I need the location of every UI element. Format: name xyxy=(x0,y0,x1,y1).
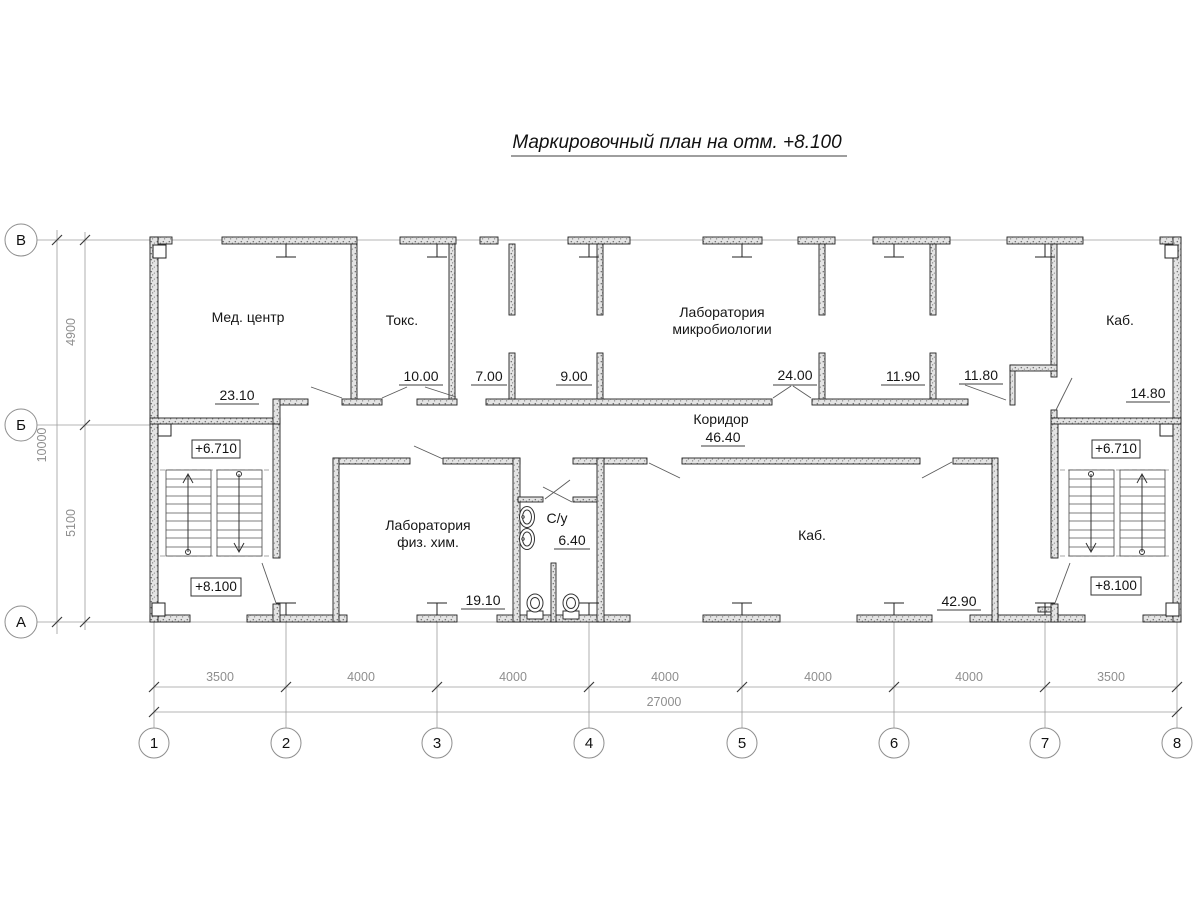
room-name-microbiology-2: микробиологии xyxy=(672,321,771,337)
elevation-left-lower: +8.100 xyxy=(195,579,237,594)
room-area-fizhim: 19.10 xyxy=(465,592,500,608)
elevation-right-upper: +6.710 xyxy=(1095,441,1137,456)
dim-total-10000: 10000 xyxy=(35,428,49,463)
column-marks xyxy=(152,244,1179,616)
room-name-sanuzel: С/у xyxy=(547,510,568,526)
room-area-1180: 11.80 xyxy=(964,367,998,383)
room-name-microbiology-1: Лаборатория xyxy=(679,304,764,320)
axis-label-row-a: А xyxy=(16,614,26,631)
axis-label-col-2: 2 xyxy=(282,735,290,752)
toilet-icon xyxy=(563,594,579,619)
corridor-north-wall xyxy=(275,365,1057,405)
corner-column-top-left xyxy=(153,245,166,258)
room-area-corridor: 46.40 xyxy=(705,429,740,445)
dim-4000-1: 4000 xyxy=(347,670,375,684)
dim-4000-4: 4000 xyxy=(804,670,832,684)
room-area-toks: 10.00 xyxy=(403,368,438,384)
door-stair-right xyxy=(1055,563,1070,603)
column-right-row-b xyxy=(1160,424,1173,436)
door-sanuzel xyxy=(543,480,572,502)
corridor-south-wall xyxy=(333,458,997,464)
dim-4000-5: 4000 xyxy=(955,670,983,684)
dim-4000-3: 4000 xyxy=(651,670,679,684)
sink-icon xyxy=(520,529,535,550)
dim-4900: 4900 xyxy=(64,318,78,346)
elevation-left-upper: +6.710 xyxy=(195,441,237,456)
room-name-kab-top: Каб. xyxy=(1106,312,1134,328)
door-toks xyxy=(382,387,407,398)
walls xyxy=(150,237,1181,622)
dim-4000-2: 4000 xyxy=(499,670,527,684)
dim-3500-2: 3500 xyxy=(1097,670,1125,684)
door-kab-big-1 xyxy=(649,463,680,478)
axis-label-col-7: 7 xyxy=(1041,735,1049,752)
room-area-microbiology: 24.00 xyxy=(777,367,812,383)
door-microbiology xyxy=(773,386,811,398)
title-block: Маркировочный план на отм. +8.100 xyxy=(511,132,847,156)
room-name-kab-big: Каб. xyxy=(798,527,826,543)
drawing-sheet: Маркировочный план на отм. +8.100 xyxy=(0,0,1200,900)
door-med-center xyxy=(311,387,342,398)
exterior-wall-right xyxy=(1173,237,1181,622)
room-name-fizhim-2: физ. хим. xyxy=(397,534,459,550)
room-area-sanuzel: 6.40 xyxy=(558,532,585,548)
axis-label-col-5: 5 xyxy=(738,735,746,752)
axis-label-col-3: 3 xyxy=(433,735,441,752)
door-kab-big-2 xyxy=(922,462,952,478)
room-name-fizhim-1: Лаборатория xyxy=(385,517,470,533)
elevation-right-lower: +8.100 xyxy=(1095,578,1137,593)
column-left-row-b xyxy=(158,424,171,436)
dim-3500-1: 3500 xyxy=(206,670,234,684)
sink-icon xyxy=(520,507,535,528)
door-fizhim xyxy=(414,446,443,459)
exterior-wall-left xyxy=(150,237,158,622)
dim-total-27000: 27000 xyxy=(647,695,682,709)
door-kab-right-top xyxy=(1056,378,1072,410)
toilet-icon xyxy=(527,594,543,619)
room-area-med-center: 23.10 xyxy=(219,387,254,403)
room-area-kab-top: 14.80 xyxy=(1130,385,1165,401)
room-name-toks: Токс. xyxy=(386,312,418,328)
column-marks-bottom xyxy=(276,603,1055,615)
axis-label-col-1: 1 xyxy=(150,735,158,752)
room-name-corridor: Коридор xyxy=(693,411,749,427)
dim-ticks-left xyxy=(52,235,90,627)
corner-column-bottom-left xyxy=(152,603,165,616)
axis-label-row-v: В xyxy=(16,232,26,249)
axis-label-col-8: 8 xyxy=(1173,735,1181,752)
corner-column-top-right xyxy=(1165,245,1178,258)
stair-right xyxy=(1060,470,1171,556)
room-area-9: 9.00 xyxy=(560,368,587,384)
door-stair-left xyxy=(262,563,276,603)
dim-5100: 5100 xyxy=(64,509,78,537)
axis-label-col-4: 4 xyxy=(585,735,593,752)
drawing-title: Маркировочный план на отм. +8.100 xyxy=(512,132,842,153)
room-area-7: 7.00 xyxy=(475,368,502,384)
stair-left xyxy=(160,470,271,556)
floor-plan-drawing: Маркировочный план на отм. +8.100 xyxy=(0,0,1200,900)
door-symbols xyxy=(262,378,1072,603)
axis-label-col-6: 6 xyxy=(890,735,898,752)
room-area-kab-big: 42.90 xyxy=(941,593,976,609)
dim-lines-left xyxy=(57,230,85,634)
door-room-1180 xyxy=(965,385,1006,400)
corner-column-bottom-right xyxy=(1166,603,1179,616)
column-marks-top xyxy=(276,244,1055,257)
exterior-wall-bottom xyxy=(150,615,1181,622)
exterior-wall-top xyxy=(150,237,1181,244)
axis-label-row-b: Б xyxy=(16,417,26,434)
room-name-med-center: Мед. центр xyxy=(212,309,285,325)
room-area-1190: 11.90 xyxy=(886,368,920,384)
